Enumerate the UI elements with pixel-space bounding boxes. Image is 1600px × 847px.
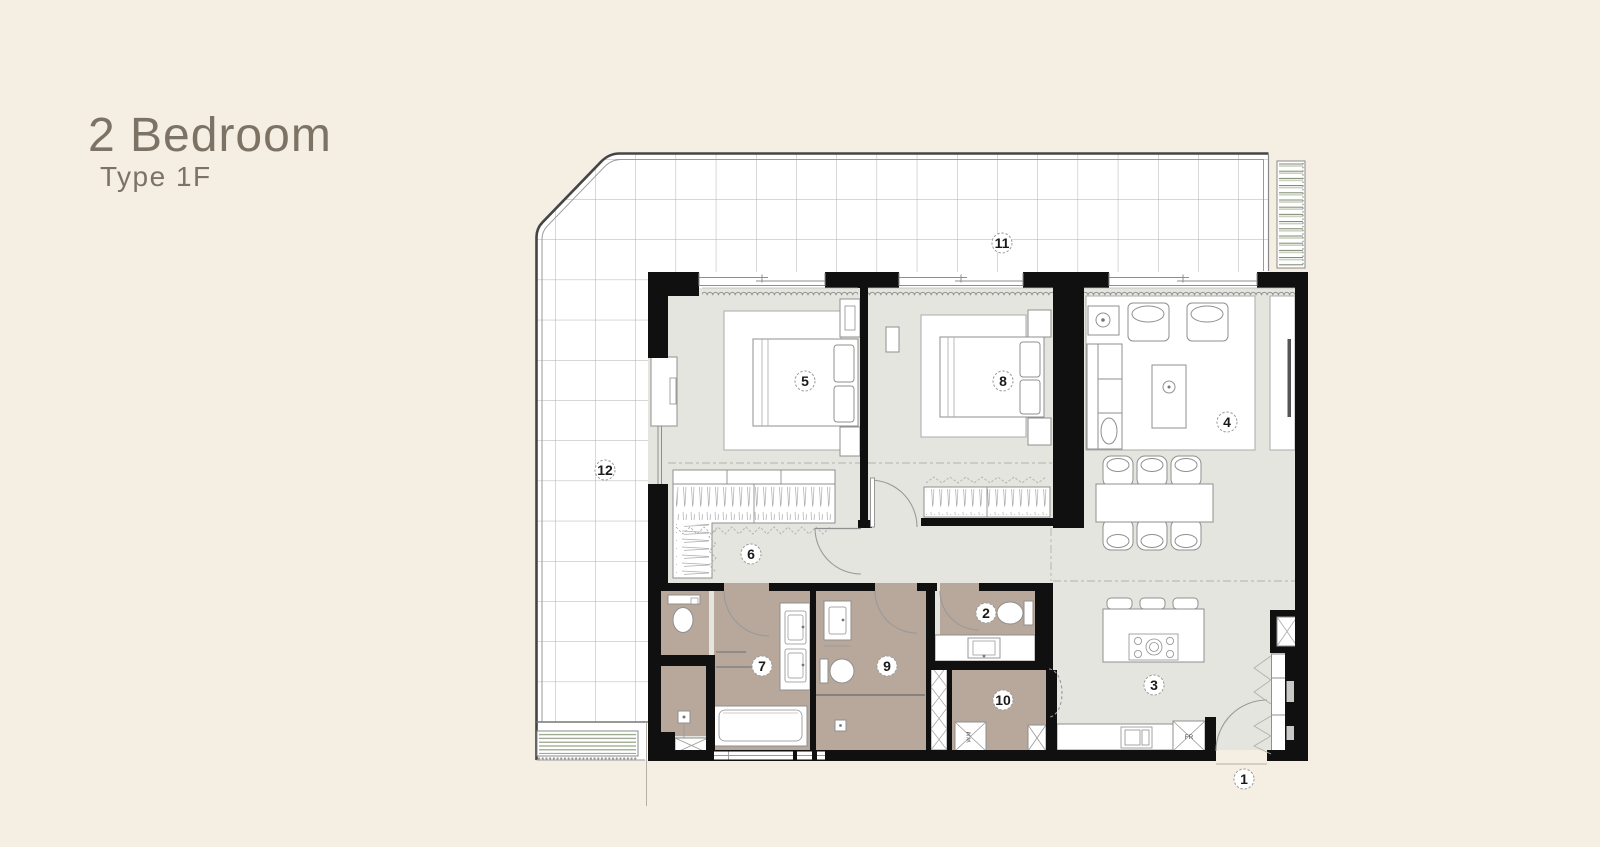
svg-text:7: 7 [758,658,766,674]
svg-text:12: 12 [597,462,613,478]
svg-text:9: 9 [883,658,891,674]
svg-text:4: 4 [1223,414,1231,430]
svg-text:W.M: W.M [967,731,973,742]
svg-text:10: 10 [995,692,1011,708]
svg-text:6: 6 [747,546,755,562]
svg-text:1: 1 [1240,771,1248,787]
svg-text:FR: FR [1185,734,1194,741]
svg-text:2: 2 [982,605,990,621]
svg-text:3: 3 [1150,677,1158,693]
svg-text:5: 5 [801,373,809,389]
svg-text:8: 8 [999,373,1007,389]
svg-text:11: 11 [995,235,1010,251]
